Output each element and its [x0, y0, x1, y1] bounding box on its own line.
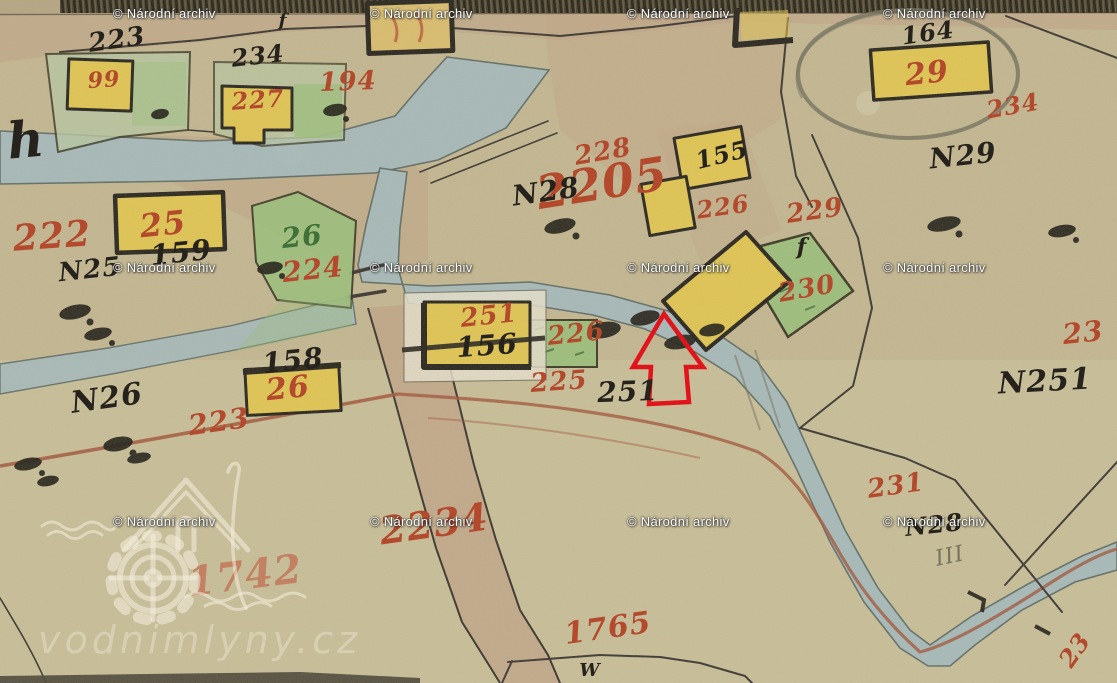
paper-grain	[0, 0, 1117, 683]
map-canvas: 220522225224262232342279919416429234N292…	[0, 0, 1117, 683]
map-artwork	[0, 0, 1117, 683]
